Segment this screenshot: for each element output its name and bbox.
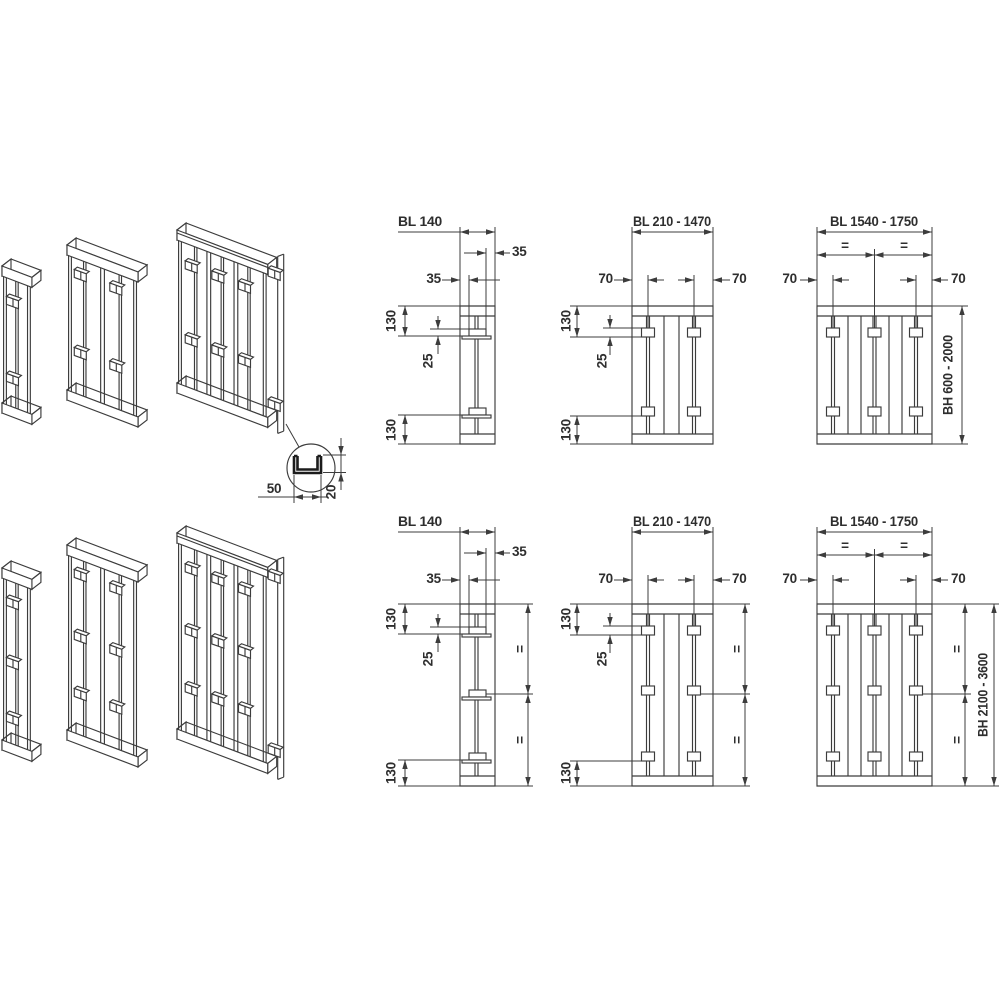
hook-bracket	[827, 626, 840, 635]
offset-left-top-right: 70	[782, 271, 797, 286]
hook-depth-bottom-left: 25	[421, 651, 436, 666]
line-art	[2, 223, 999, 786]
hook-bracket	[642, 752, 655, 761]
hook-bracket	[688, 752, 701, 761]
bl-label-top-middle: BL 210 - 1470	[633, 214, 711, 229]
bl-label-top-left: BL 140	[398, 214, 442, 229]
hook-bracket	[868, 626, 881, 635]
equal-lower-bottom-right: =	[950, 736, 965, 744]
detail-leader-line	[286, 424, 299, 447]
hook-depth-bottom-middle: 25	[595, 651, 610, 666]
hook-bracket	[469, 408, 486, 415]
hook-bracket	[469, 329, 486, 336]
detail-width-label: 50	[267, 481, 282, 496]
dimension-labels: BL 140 35 35 130 25 130 BL 210 - 1470 70…	[267, 214, 991, 784]
hook-bracket	[642, 407, 655, 416]
equal-left-top-right: =	[841, 238, 849, 253]
hook-depth-top-middle: 25	[595, 353, 610, 368]
equal-lower-bottom-middle: =	[730, 736, 745, 744]
hook-bracket	[688, 328, 701, 337]
hook-bracket	[688, 626, 701, 635]
inset-left-bottom-left: 35	[426, 571, 441, 586]
hook-bracket	[642, 626, 655, 635]
panel-front-view	[632, 306, 713, 444]
hook-bracket	[827, 686, 840, 695]
u-profile-section	[294, 456, 321, 473]
offset-left-bottom-middle: 70	[598, 571, 613, 586]
technical-drawing: BL 140 35 35 130 25 130 BL 210 - 1470 70…	[0, 0, 1000, 1000]
equal-upper-bottom-right: =	[950, 645, 965, 653]
inset-right-top-left: 35	[512, 244, 527, 259]
top-offset-bottom-middle: 130	[559, 608, 574, 630]
bh-label-bottom-right: BH 2100 - 3600	[976, 653, 991, 737]
inset-left-top-left: 35	[426, 271, 441, 286]
hook-bracket	[868, 328, 881, 337]
hook-flange	[462, 336, 491, 339]
hook-bracket	[642, 328, 655, 337]
bh-label-top-right: BH 600 - 2000	[941, 335, 956, 415]
hook-bracket	[910, 626, 923, 635]
top-offset-top-middle: 130	[559, 310, 574, 332]
hook-bracket	[642, 686, 655, 695]
hook-bracket	[910, 328, 923, 337]
dimension-lines	[398, 227, 510, 444]
panel-front-view	[460, 306, 495, 444]
bl-label-top-right: BL 1540 - 1750	[830, 214, 918, 229]
hook-bracket	[868, 407, 881, 416]
hook-bracket	[688, 686, 701, 695]
bl-label-bottom-middle: BL 210 - 1470	[633, 514, 711, 529]
equal-upper-bottom-left: =	[513, 645, 528, 653]
bottom-offset-bottom-middle: 130	[559, 762, 574, 784]
equal-right-bottom-right: =	[900, 538, 908, 553]
hook-bracket	[827, 328, 840, 337]
hook-bracket	[868, 686, 881, 695]
hook-flange	[462, 760, 491, 763]
equal-left-bottom-right: =	[841, 538, 849, 553]
equal-upper-bottom-middle: =	[730, 645, 745, 653]
hook-bracket	[827, 752, 840, 761]
offset-left-bottom-right: 70	[782, 571, 797, 586]
hook-bracket	[469, 627, 486, 634]
hook-bracket	[910, 686, 923, 695]
detail-depth-label: 20	[324, 485, 339, 500]
bottom-offset-top-left: 130	[384, 419, 399, 441]
inset-right-bottom-left: 35	[512, 544, 527, 559]
bl-label-bottom-right: BL 1540 - 1750	[830, 514, 918, 529]
hook-bracket	[688, 407, 701, 416]
hook-bracket	[910, 752, 923, 761]
hook-flange	[462, 634, 491, 637]
top-offset-bottom-left: 130	[384, 608, 399, 630]
hook-bracket	[469, 753, 486, 760]
hook-flange	[462, 415, 491, 418]
hook-bracket	[910, 407, 923, 416]
hook-flange	[462, 697, 491, 700]
offset-right-bottom-middle: 70	[732, 571, 747, 586]
bottom-offset-bottom-left: 130	[384, 762, 399, 784]
offset-right-top-right: 70	[951, 271, 966, 286]
hook-bracket	[469, 690, 486, 697]
hook-bracket	[827, 407, 840, 416]
drawing-sheet: BL 140 35 35 130 25 130 BL 210 - 1470 70…	[0, 0, 1000, 1000]
equal-lower-bottom-left: =	[513, 736, 528, 744]
hook-depth-top-left: 25	[421, 353, 436, 368]
hook-bracket	[868, 752, 881, 761]
dimension-lines	[800, 527, 999, 786]
equal-right-top-right: =	[900, 238, 908, 253]
offset-left-top-middle: 70	[598, 271, 613, 286]
offset-right-top-middle: 70	[732, 271, 747, 286]
offset-right-bottom-right: 70	[951, 571, 966, 586]
top-offset-top-left: 130	[384, 310, 399, 332]
bottom-offset-top-middle: 130	[559, 419, 574, 441]
dimension-lines	[398, 527, 533, 786]
bl-label-bottom-left: BL 140	[398, 514, 442, 529]
